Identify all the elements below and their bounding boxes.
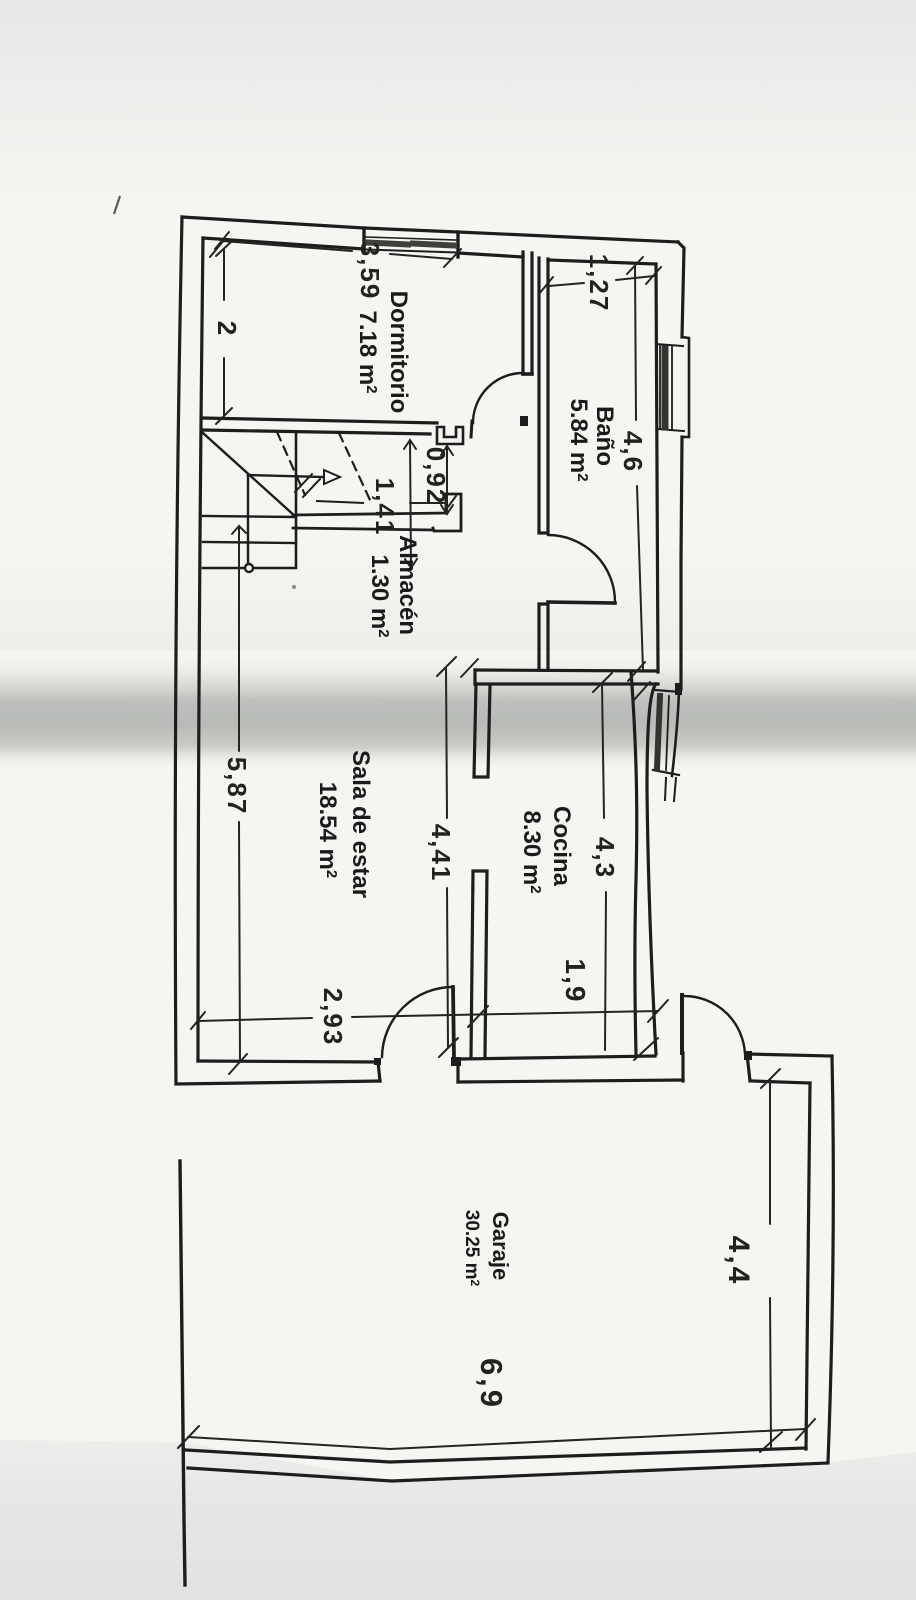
svg-text:1,27: 1,27 xyxy=(584,254,614,313)
svg-text:2,93: 2,93 xyxy=(318,988,348,1047)
svg-text:18.54 m2: 18.54 m2 xyxy=(314,782,341,878)
svg-text:6,9: 6,9 xyxy=(474,1358,509,1410)
svg-text:Garaje: Garaje xyxy=(488,1212,513,1281)
svg-text:5,87: 5,87 xyxy=(222,757,252,816)
svg-text:Almacén: Almacén xyxy=(394,535,421,635)
svg-text:Dormitorio: Dormitorio xyxy=(385,291,412,414)
svg-text:4,6: 4,6 xyxy=(618,431,648,473)
svg-text:3,59: 3,59 xyxy=(355,242,385,301)
svg-text:1,9: 1,9 xyxy=(560,959,591,1004)
svg-text:4,4: 4,4 xyxy=(722,1236,755,1287)
svg-text:4,41: 4,41 xyxy=(426,824,456,883)
svg-text:Sala de estar: Sala de estar xyxy=(347,750,374,898)
svg-text:1,41: 1,41 xyxy=(370,478,400,537)
svg-text:Cocina: Cocina xyxy=(548,806,575,887)
svg-text:Baño: Baño xyxy=(591,406,618,466)
svg-text:8.30 m2: 8.30 m2 xyxy=(518,810,545,893)
svg-text:1.30 m2: 1.30 m2 xyxy=(366,554,393,637)
svg-text:7.18 m2: 7.18 m2 xyxy=(354,310,381,393)
svg-text:5.84 m2: 5.84 m2 xyxy=(565,398,592,481)
svg-text:0,92: 0,92 xyxy=(421,447,451,506)
svg-text:4,3: 4,3 xyxy=(590,837,620,879)
svg-text:2: 2 xyxy=(212,321,242,337)
svg-text:30.25 m2: 30.25 m2 xyxy=(461,1210,482,1287)
